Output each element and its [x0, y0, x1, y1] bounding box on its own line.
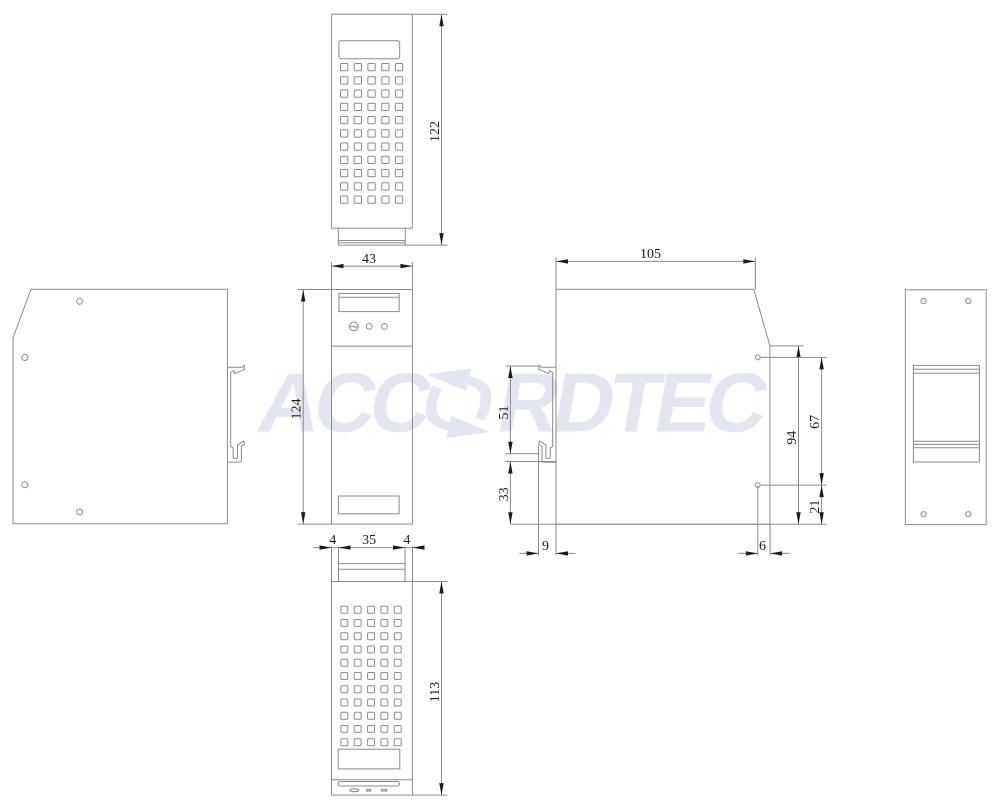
- svg-text:94: 94: [785, 431, 800, 445]
- svg-text:21: 21: [808, 500, 823, 514]
- svg-text:67: 67: [808, 415, 823, 429]
- svg-text:RDTEC: RDTEC: [491, 355, 774, 449]
- svg-text:113: 113: [428, 682, 443, 702]
- svg-text:4: 4: [329, 533, 336, 548]
- svg-text:4: 4: [403, 533, 410, 548]
- svg-text:33: 33: [497, 487, 512, 501]
- svg-text:43: 43: [362, 252, 376, 267]
- svg-text:105: 105: [640, 247, 661, 262]
- svg-text:35: 35: [362, 533, 376, 548]
- svg-text:ACC: ACC: [252, 355, 438, 449]
- svg-text:51: 51: [497, 406, 512, 420]
- svg-text:9: 9: [542, 539, 549, 554]
- svg-text:124: 124: [290, 399, 305, 420]
- svg-text:122: 122: [428, 121, 443, 142]
- svg-text:6: 6: [759, 539, 766, 554]
